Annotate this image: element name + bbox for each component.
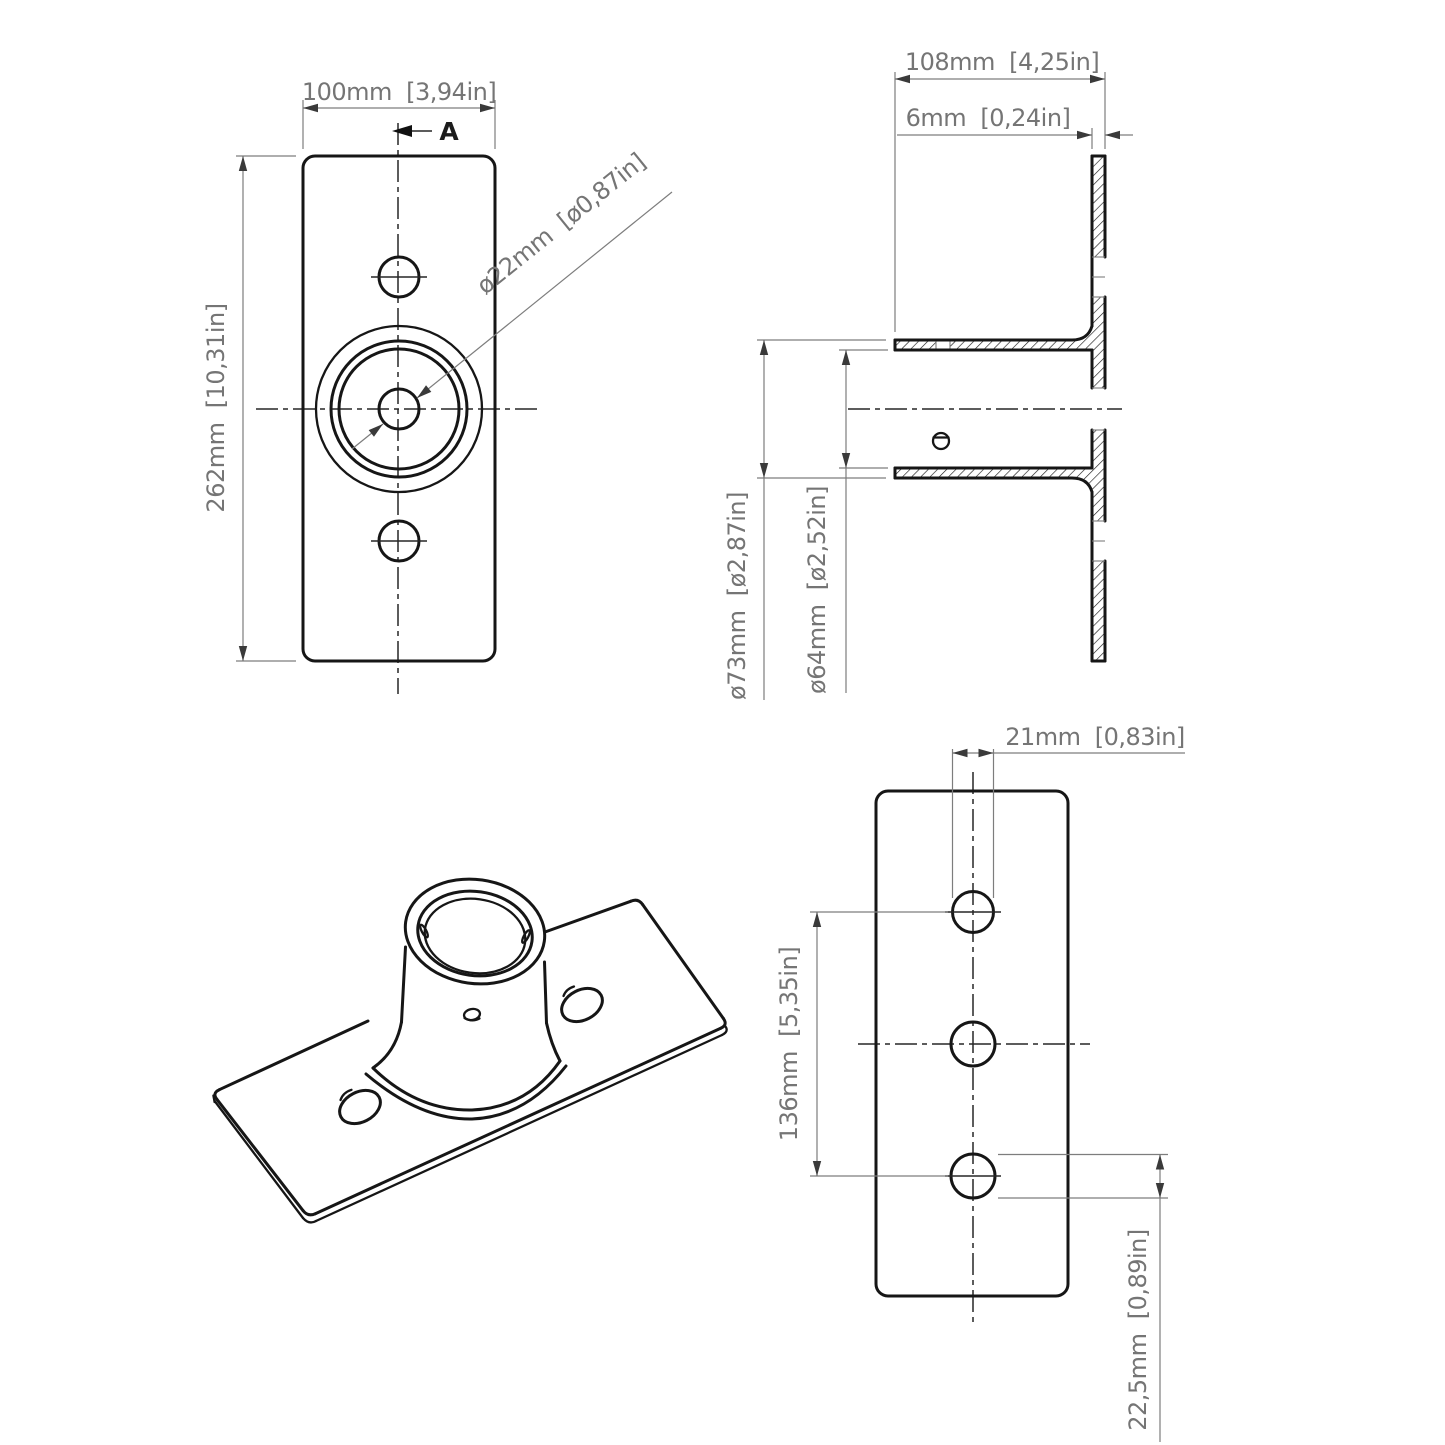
section-depth-dimension: 108mm [4,25in] [895,48,1105,332]
section-thickness-dimension: 6mm [0,24in] [897,104,1133,149]
section-arrow: A [392,117,459,146]
back-hole-dia-label: 21mm [0,83in] [1005,723,1185,751]
setscrew-hole [933,433,949,449]
front-width-dimension: 100mm [3,94in] [302,78,496,149]
section-label: A [439,117,459,146]
front-height-label: 262mm [10,31in] [202,303,230,512]
iso-tube [366,870,566,1119]
drawing-canvas: 100mm [3,94in] 262mm [10,31in] ø22mm [ø0… [0,0,1445,1445]
section-inner-dia-label: ø64mm [ø2,52in] [803,486,831,694]
back-edge-distance-dimension: 22,5mm [0,89in] [998,1155,1168,1443]
back-edge-distance-label: 22,5mm [0,89in] [1124,1229,1152,1431]
drawing-sheet: 100mm [3,94in] 262mm [10,31in] ø22mm [ø0… [0,0,1445,1445]
section-outer-dia-label: ø73mm [ø2,87in] [723,492,751,700]
iso-plate-outline [215,900,725,1215]
back-spacing-label: 136mm [5,35in] [775,947,803,1141]
section-depth-label: 108mm [4,25in] [905,48,1099,76]
front-hole-dia-label: ø22mm [ø0,87in] [471,148,650,300]
front-height-dimension: 262mm [10,31in] [202,156,296,661]
section-thickness-label: 6mm [0,24in] [906,104,1071,132]
front-view: 100mm [3,94in] 262mm [10,31in] ø22mm [ø0… [202,78,672,694]
section-view: 108mm [4,25in] 6mm [0,24in] ø73mm [ø2,87… [723,48,1133,700]
front-width-label: 100mm [3,94in] [302,78,496,106]
section-inner-dia-dimension: ø64mm [ø2,52in] [803,350,888,694]
iso-plate-holes [334,982,608,1130]
back-view: 21mm [0,83in] 136mm [5,35in] 22,5mm [0,8… [775,723,1185,1442]
isometric-view [213,870,726,1222]
